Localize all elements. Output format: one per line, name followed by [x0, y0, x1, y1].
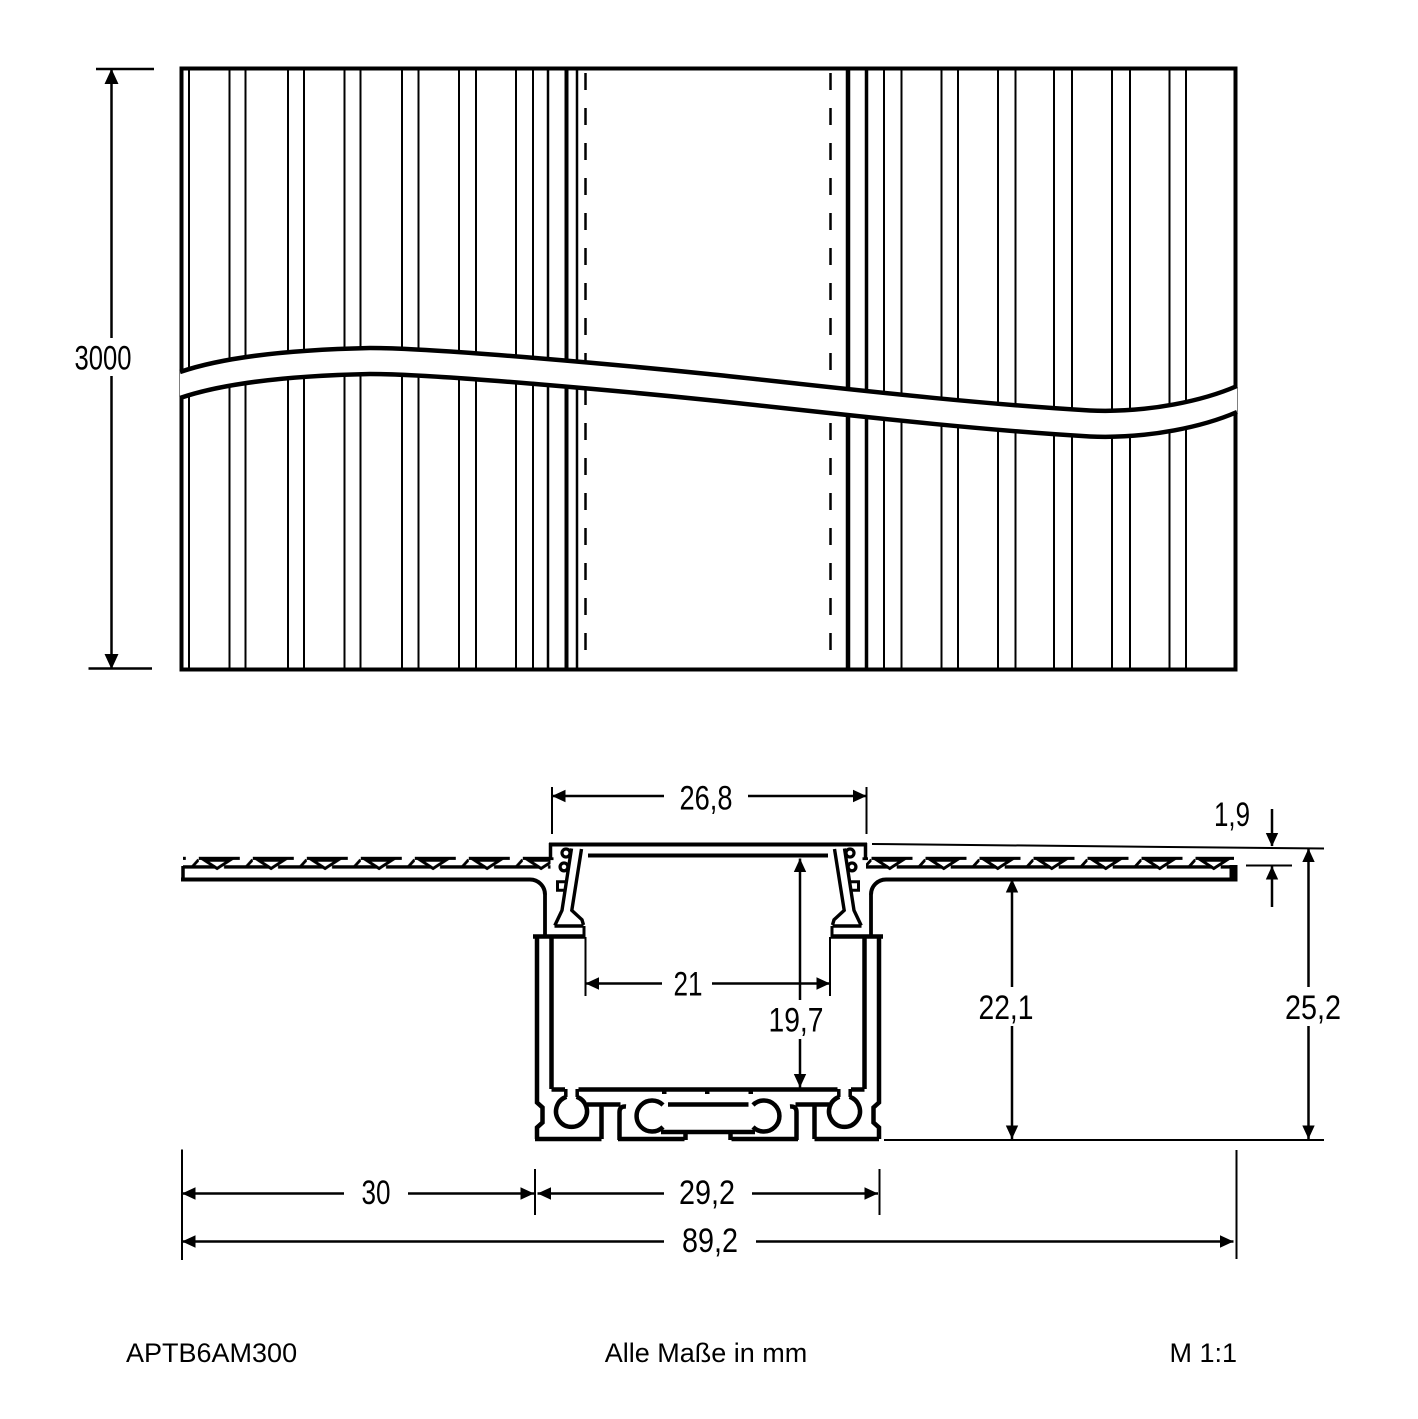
- svg-text:APTB6AM300: APTB6AM300: [126, 1338, 297, 1368]
- svg-text:1,9: 1,9: [1214, 796, 1250, 834]
- svg-text:25,2: 25,2: [1285, 989, 1341, 1027]
- svg-text:Alle Maße in mm: Alle Maße in mm: [605, 1338, 808, 1368]
- svg-text:89,2: 89,2: [682, 1222, 738, 1260]
- svg-text:M 1:1: M 1:1: [1169, 1338, 1237, 1368]
- svg-text:21: 21: [674, 966, 703, 1004]
- svg-text:3000: 3000: [75, 340, 132, 378]
- svg-text:19,7: 19,7: [769, 1002, 824, 1040]
- svg-text:30: 30: [362, 1174, 391, 1212]
- svg-text:22,1: 22,1: [979, 989, 1034, 1027]
- svg-text:29,2: 29,2: [679, 1174, 735, 1212]
- svg-text:26,8: 26,8: [680, 780, 733, 818]
